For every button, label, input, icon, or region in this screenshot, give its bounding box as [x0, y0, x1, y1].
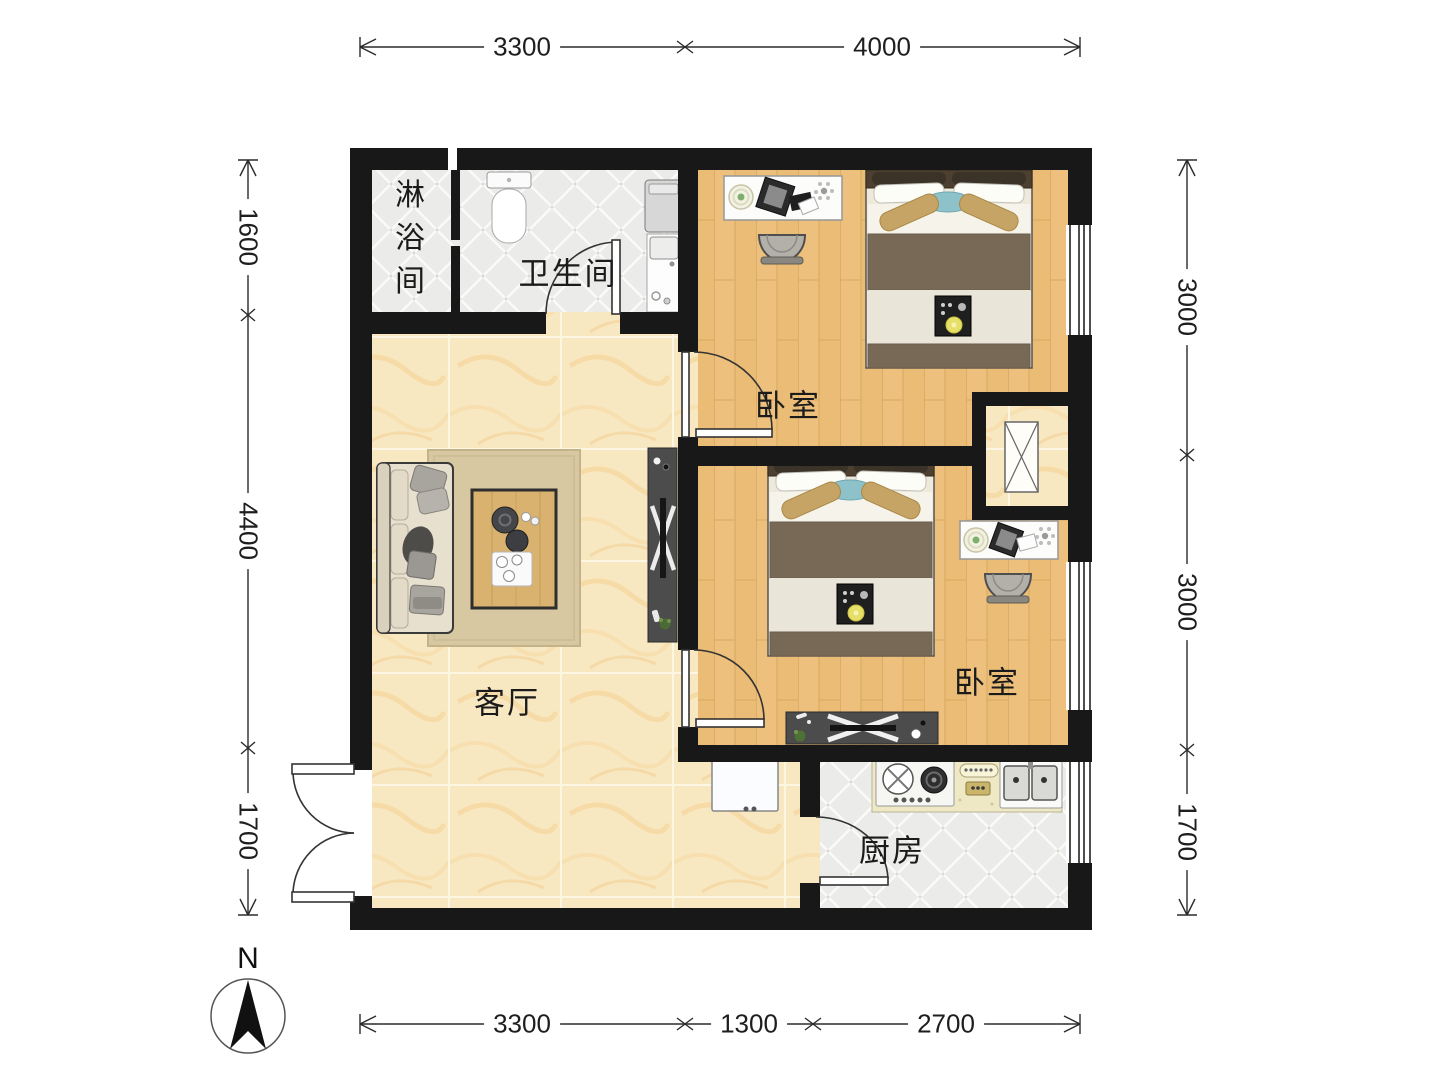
sink-basin: [1032, 766, 1057, 800]
shaft-duct: [1005, 422, 1038, 492]
wall-bathroom-bottom: [620, 312, 678, 334]
vanity-sink: [650, 237, 678, 259]
toilet-bowl: [492, 189, 526, 243]
room-label-bedroom-top: 卧室: [755, 381, 821, 426]
compass-north-label: N: [237, 942, 259, 976]
room-label-living: 客厅: [474, 678, 540, 723]
desk-chair: [985, 574, 1031, 603]
sink-basin: [1004, 766, 1029, 800]
wall-left: [350, 148, 372, 770]
controller: [911, 729, 921, 739]
wall-bottom: [350, 908, 1092, 930]
wall-bathroom-bedroom: [678, 170, 698, 352]
kitchen-fixtures: [872, 756, 1062, 812]
compass: [211, 979, 285, 1053]
dim-top-2: 4000: [844, 33, 920, 60]
wall-bathroom-bottom: [372, 312, 546, 334]
wall-right: [1068, 148, 1092, 225]
bed: [768, 458, 934, 656]
desk-chair: [759, 235, 805, 264]
window-bedroom-bottom: [1066, 562, 1094, 710]
wall-shaft-left: [972, 392, 986, 520]
entry-double-door: [292, 764, 354, 902]
dim-bottom-3: 2700: [908, 1010, 984, 1037]
dim-right-1: 3000: [1173, 269, 1200, 345]
wall-bedroom-divider: [678, 446, 986, 466]
floor-plan-page: 淋浴间 卫生间 卧室 卧室 客厅 厨房 3300 4000 3300 1300 …: [0, 0, 1440, 1089]
desk-plant: [964, 528, 988, 552]
wall-kitchen-left: [800, 762, 820, 817]
wall-kitchen-left: [800, 883, 820, 908]
dim-bottom-2: 1300: [711, 1010, 787, 1037]
dim-left-3: 1700: [234, 793, 261, 869]
bed: [866, 170, 1032, 368]
room-label-bathroom: 卫生间: [519, 249, 618, 294]
teapot: [506, 530, 528, 552]
window-kitchen: [1066, 762, 1094, 863]
dim-left-2: 4400: [234, 493, 261, 569]
shower-partition: [451, 246, 460, 312]
window-bedroom-top: [1066, 225, 1094, 335]
room-label-kitchen: 厨房: [859, 826, 925, 871]
dim-right-2: 3000: [1173, 564, 1200, 640]
wall-shaft-top: [986, 392, 1068, 406]
shower-partition: [451, 170, 460, 240]
dim-top-1: 3300: [484, 33, 560, 60]
dim-right-3: 1700: [1173, 794, 1200, 870]
wall-kitchen-top: [698, 745, 1068, 762]
wall-living-bedrooms: [678, 727, 698, 762]
partition-track-gap: [448, 148, 457, 170]
desk-plant: [729, 185, 753, 209]
room-label-shower: 淋浴间: [384, 179, 428, 308]
dim-bottom-1: 3300: [484, 1010, 560, 1037]
dim-line-top: [360, 37, 1080, 57]
teapot: [492, 507, 518, 533]
dim-left-1: 1600: [234, 199, 261, 275]
wall-shaft-bottom: [986, 506, 1068, 520]
wall-living-bedrooms: [678, 437, 698, 650]
wall-top: [350, 148, 1092, 170]
wall-right: [1068, 335, 1092, 562]
floor-plan-drawing: [0, 0, 1440, 1089]
room-label-bedroom-bottom: 卧室: [954, 658, 1020, 703]
wall-right: [1068, 863, 1092, 930]
fridge: [712, 757, 778, 811]
wall-right: [1068, 710, 1092, 762]
